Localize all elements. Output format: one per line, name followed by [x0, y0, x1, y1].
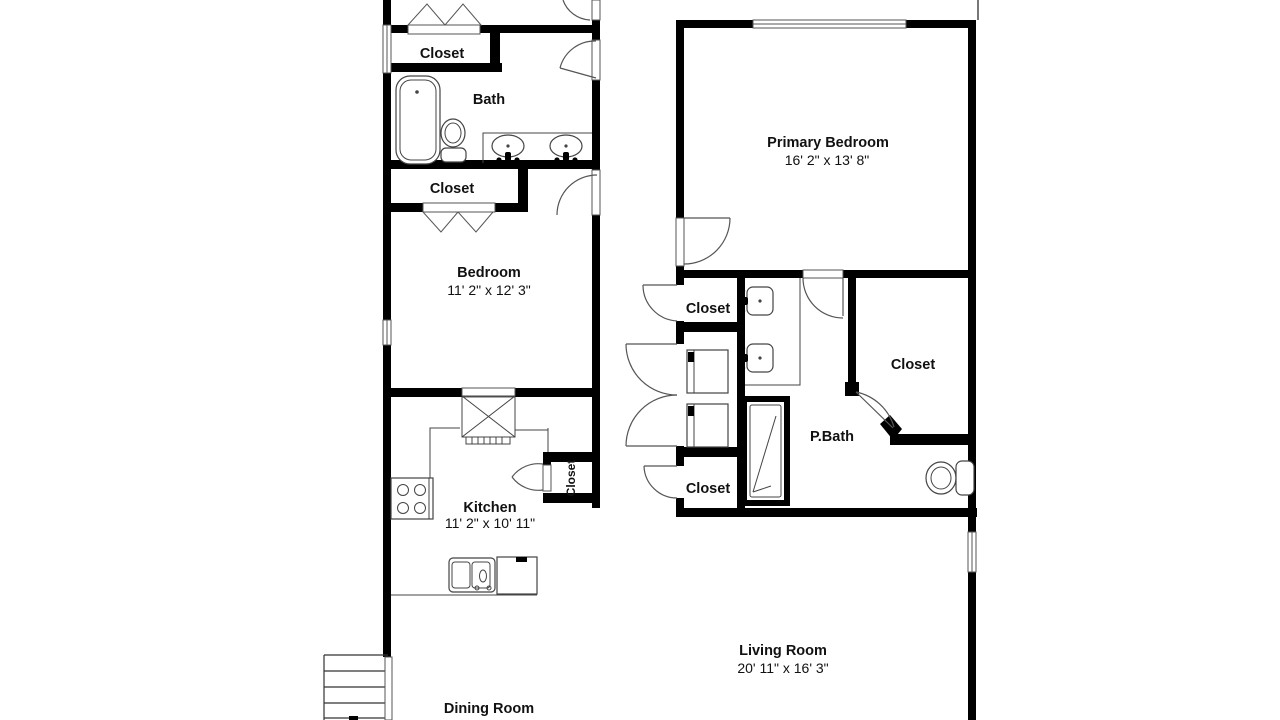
- primary-bedroom-dimensions: 16' 2" x 13' 8": [785, 152, 870, 168]
- stove-icon: [391, 478, 433, 519]
- walls: [383, 0, 979, 720]
- door-primary-bedroom: [676, 218, 730, 266]
- door-linen-closet: [644, 466, 677, 498]
- bifold-closet-bedroom: [423, 203, 495, 232]
- window-bedroom-left: [383, 320, 391, 345]
- kitchen-sink-icon: [449, 558, 495, 592]
- floor-plan: Closet Bath Closet Bedroom 11' 2" x 12' …: [0, 0, 1280, 720]
- closet-mid-label: Closet: [430, 181, 474, 197]
- bathtub-icon: [396, 76, 440, 164]
- door-bath: [560, 40, 600, 80]
- living-room-dimensions: 20' 11" x 16' 3": [737, 660, 828, 676]
- door-laundry-right: [626, 395, 677, 446]
- living-room-label: Living Room: [739, 643, 827, 659]
- closet-top-label: Closet: [420, 46, 464, 62]
- toilet-pbath-icon: [926, 461, 974, 495]
- primary-bedroom-label: Primary Bedroom: [767, 135, 889, 151]
- kitchen-dimensions: 11' 2" x 10' 11": [445, 515, 535, 531]
- stairs-icon: [324, 655, 392, 720]
- door-kitchen-closet: [512, 464, 551, 491]
- window-living-right: [968, 532, 976, 572]
- kitchen-label: Kitchen: [463, 500, 516, 516]
- window-closet-left: [383, 25, 391, 73]
- primary-closet-label: Closet: [891, 357, 935, 373]
- shower-icon: [741, 396, 790, 506]
- dining-room-label: Dining Room: [444, 701, 534, 717]
- bifold-closet-top: [408, 4, 481, 34]
- door-primary-closet: [856, 392, 894, 428]
- primary-bath-label: P.Bath: [810, 429, 854, 445]
- bath-label: Bath: [473, 92, 505, 108]
- dishwasher-icon: [497, 557, 537, 594]
- kitchen-closet-label: Closet: [564, 460, 578, 497]
- door-upper-room: [563, 0, 600, 20]
- door-primary-bath: [803, 270, 843, 318]
- refrigerator-icon: [462, 396, 515, 444]
- linen-closet-label: Closet: [686, 481, 730, 497]
- window-primary-top: [753, 20, 906, 28]
- bedroom-dimensions: 11' 2" x 12' 3": [447, 282, 531, 298]
- toilet-bath-icon: [441, 119, 466, 162]
- pbath-vanity-icon: [740, 278, 800, 385]
- vanity-double-sink-icon: [483, 133, 592, 163]
- door-hall-closet: [643, 285, 677, 321]
- door-laundry-left: [626, 344, 677, 395]
- door-bedroom: [557, 170, 600, 215]
- floor-plan-page: Closet Bath Closet Bedroom 11' 2" x 12' …: [0, 0, 1280, 720]
- bedroom-label: Bedroom: [457, 265, 521, 281]
- washer-dryer-icon: [687, 350, 728, 447]
- hall-closet-label: Closet: [686, 301, 730, 317]
